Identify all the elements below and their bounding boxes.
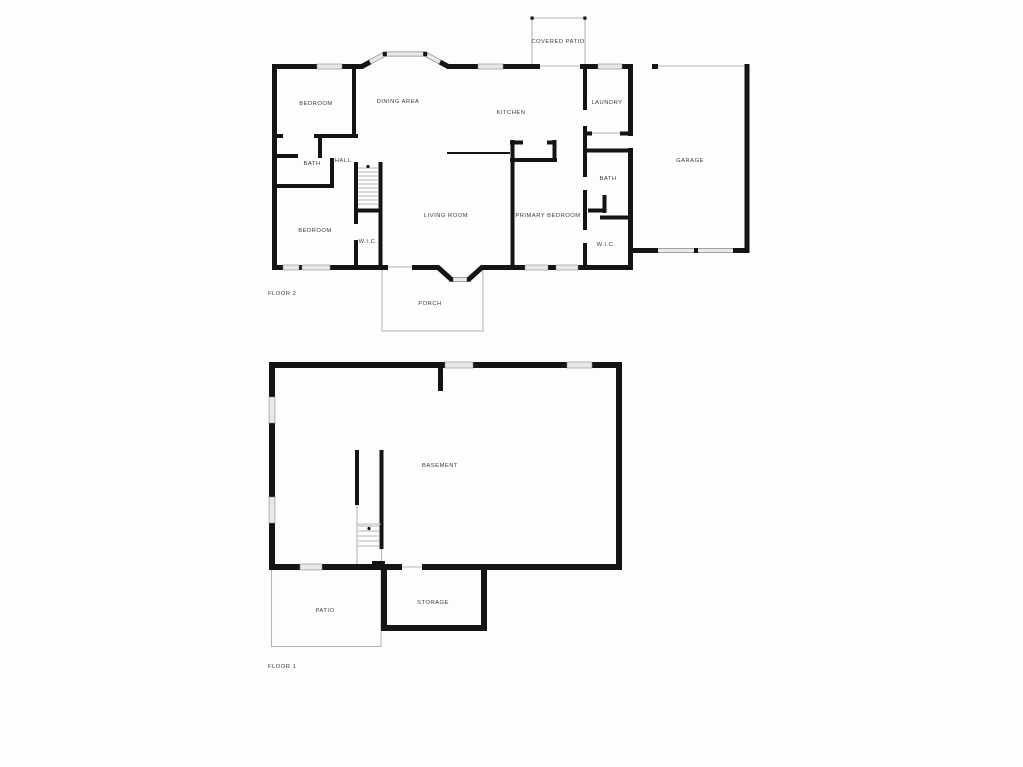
room-label-wic-left: W.I.C. (359, 239, 378, 245)
room-label-wic-right: W.I.C. (597, 242, 616, 248)
floor2-plan: BEDROOM DINING AREA KITCHEN LAUNDRY COVE… (268, 17, 750, 332)
room-label-dining-area: DINING AREA (377, 99, 420, 105)
room-label-primary-bedroom: PRIMARY BEDROOM (515, 213, 580, 219)
room-label-porch: PORCH (418, 301, 441, 307)
floor2-windows (283, 52, 733, 282)
floor1-plan: BASEMENT STORAGE PATIO FLOOR 1 (268, 362, 622, 670)
room-label-living-room: LIVING ROOM (424, 213, 468, 219)
room-label-basement: BASEMENT (422, 463, 458, 469)
room-label-hall: HALL (335, 158, 352, 164)
stair-wall-post (372, 561, 385, 569)
storage-walls (381, 567, 487, 631)
floor1-title: FLOOR 1 (268, 664, 296, 670)
floor2-interior-walls (272, 64, 633, 270)
floor2-stairs (358, 165, 379, 204)
room-label-bedroom-top: BEDROOM (299, 101, 332, 107)
stair-direction-dot (366, 165, 369, 168)
room-label-storage: STORAGE (417, 600, 449, 606)
room-label-patio: PATIO (315, 608, 334, 614)
room-label-garage: GARAGE (676, 158, 704, 164)
basement-stairs (357, 450, 385, 569)
floor-plan-drawing: BEDROOM DINING AREA KITCHEN LAUNDRY COVE… (0, 0, 1023, 767)
covered-patio-corner-dot (531, 17, 534, 20)
floorplan-canvas: BEDROOM DINING AREA KITCHEN LAUNDRY COVE… (0, 0, 1023, 767)
room-label-covered-patio: COVERED PATIO (531, 39, 584, 45)
room-label-bath-left: BATH (303, 161, 320, 167)
floor2-title: FLOOR 2 (268, 291, 296, 297)
room-label-bath-right: BATH (599, 176, 616, 182)
room-label-bedroom-bottom: BEDROOM (298, 228, 331, 234)
room-label-laundry: LAUNDRY (591, 100, 622, 106)
room-label-kitchen: KITCHEN (497, 110, 526, 116)
covered-patio-corner-dot (583, 17, 586, 20)
stair-direction-dot (367, 527, 370, 530)
